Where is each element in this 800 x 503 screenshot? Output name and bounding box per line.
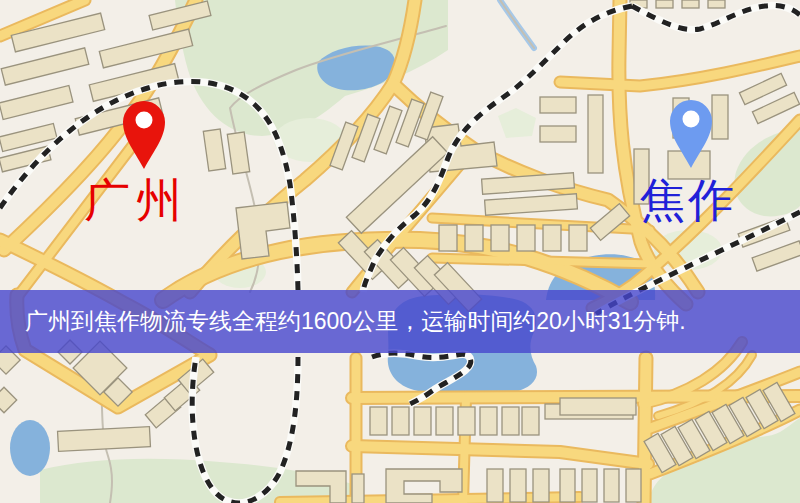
- route-info-banner: 广州到焦作物流专线全程约1600公里，运输时间约20小时31分钟.: [0, 290, 800, 353]
- origin-city-label: 广州: [84, 178, 188, 224]
- map-canvas[interactable]: [0, 0, 800, 503]
- route-info-text: 广州到焦作物流专线全程约1600公里，运输时间约20小时31分钟.: [25, 308, 686, 336]
- destination-city-label: 焦作: [640, 178, 736, 224]
- logistics-route-map: 广州 焦作 广州到焦作物流专线全程约1600公里，运输时间约20小时31分钟.: [0, 0, 800, 503]
